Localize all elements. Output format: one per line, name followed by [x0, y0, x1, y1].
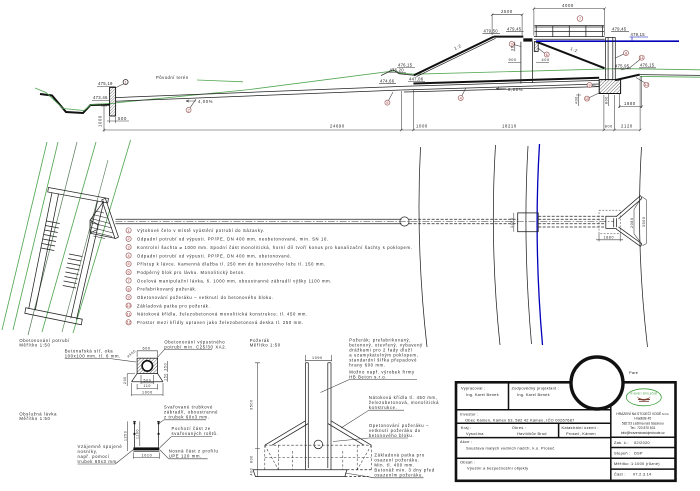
svg-text:Obsah :: Obsah : — [460, 459, 475, 464]
svg-text:1:2: 1:2 — [453, 43, 462, 51]
svg-text:6: 6 — [128, 271, 130, 275]
svg-text:Odpadní potrubí od výpusti. PP: Odpadní potrubí od výpusti. PP/PE, DN 40… — [137, 253, 292, 258]
svg-text:1000: 1000 — [142, 391, 153, 395]
svg-text:1000: 1000 — [98, 115, 103, 127]
svg-text:svařovaných roštů.: svařovaných roštů. — [172, 431, 219, 436]
svg-text:Zodpovědný projektant :: Zodpovědný projektant : — [512, 385, 560, 390]
svg-text:350: 350 — [164, 363, 168, 371]
svg-text:hrany 600 mm.: hrany 600 mm. — [349, 362, 385, 367]
svg-text:HRÁZENÍ NA STOJEČÍ VODĚ s.r.o.: HRÁZENÍ NA STOJEČÍ VODĚ s.r.o. — [616, 411, 669, 416]
svg-text:2120: 2120 — [621, 124, 633, 129]
svg-text:11: 11 — [127, 312, 131, 316]
svg-text:konstrukce.: konstrukce. — [369, 405, 398, 410]
svg-text:osazením požeráku.: osazením požeráku. — [374, 473, 423, 478]
svg-text:3: 3 — [128, 246, 130, 250]
svg-text:7: 7 — [579, 17, 581, 21]
svg-text:Část :: Část : — [614, 472, 626, 477]
svg-text:2: 2 — [128, 237, 130, 241]
svg-text:Vysočina: Vysočina — [466, 431, 484, 436]
svg-text:Výtokové čelo v místě vyústění: Výtokové čelo v místě vyústění potrubí d… — [137, 228, 265, 233]
svg-text:Paré: Paré — [629, 370, 638, 375]
svg-text:600: 600 — [143, 347, 151, 351]
svg-text:900: 900 — [509, 58, 517, 62]
svg-text:Přístup k lávce. Kamenná dlažb: Přístup k lávce. Kamenná dlažba tl. 250 … — [137, 262, 326, 267]
svg-text:7: 7 — [128, 279, 130, 283]
svg-text:18210: 18210 — [502, 124, 517, 129]
svg-text:9: 9 — [589, 83, 591, 87]
svg-text:4: 4 — [460, 96, 462, 100]
svg-text:2: 2 — [188, 108, 190, 112]
svg-text:07.2.3.14: 07.2.3.14 — [633, 472, 652, 477]
svg-text:UPE 120 mm.: UPE 120 mm. — [169, 454, 202, 459]
svg-text:betonového bloku.: betonového bloku. — [369, 433, 414, 438]
svg-text:info@hrazeninastojecivode.cz: info@hrazeninastojecivode.cz — [621, 431, 665, 435]
svg-text:Stupeň :: Stupeň : — [614, 450, 631, 455]
svg-text:479,15: 479,15 — [631, 32, 646, 37]
svg-text:400: 400 — [250, 468, 254, 476]
svg-text:8: 8 — [625, 51, 627, 55]
svg-text:5: 5 — [386, 101, 388, 105]
svg-text:24690: 24690 — [330, 124, 345, 129]
svg-text:6: 6 — [546, 53, 548, 57]
svg-text:Podpěrný blok pro lávku. Monol: Podpěrný blok pro lávku. Monolitický bet… — [137, 270, 246, 275]
svg-text:12: 12 — [126, 321, 130, 325]
svg-text:9: 9 — [128, 296, 130, 300]
svg-text:473,46: 473,46 — [93, 95, 108, 100]
svg-text:DSP: DSP — [634, 450, 643, 455]
svg-text:1000: 1000 — [416, 124, 428, 129]
svg-text:4,00%: 4,00% — [198, 99, 213, 104]
svg-text:1:2: 1:2 — [570, 46, 579, 53]
svg-text:476,20: 476,20 — [390, 67, 405, 72]
svg-text:1010: 1010 — [142, 453, 153, 457]
svg-text:11: 11 — [640, 56, 644, 60]
svg-text:2080: 2080 — [630, 217, 634, 228]
svg-text:Kontrolní šachta ⌀ 1000 mm. Sp: Kontrolní šachta ⌀ 1000 mm. Spodní část … — [137, 245, 412, 250]
svg-text:Měřítko :: Měřítko : — [614, 461, 631, 466]
svg-text:Ing. Karel Beneš: Ing. Karel Beneš — [466, 392, 499, 397]
svg-text:Původní terén: Původní terén — [156, 75, 189, 80]
svg-text:Tel.: 720 870 631: Tel.: 720 870 631 — [630, 426, 655, 430]
svg-text:447,06: 447,06 — [409, 76, 424, 81]
svg-text:10: 10 — [126, 304, 130, 308]
svg-text:1090: 1090 — [312, 356, 323, 360]
svg-text:Soustava malých vodních nádrží: Soustava malých vodních nádrží, k.ú. Pro… — [466, 446, 555, 451]
svg-text:3: 3 — [511, 42, 513, 46]
svg-text:475,95: 475,95 — [615, 64, 630, 69]
svg-text:3500: 3500 — [250, 399, 254, 410]
svg-text:Obetonování požeráku – vetknut: Obetonování požeráku – vetknutí do beton… — [137, 295, 274, 300]
svg-text:582 53 Leština nad Sázavou: 582 53 Leština nad Sázavou — [622, 421, 664, 425]
svg-text:Odpadní potrubí od výpusti. PP: Odpadní potrubí od výpusti. PP/PE, DN 40… — [137, 237, 329, 242]
svg-text:1400: 1400 — [510, 217, 514, 228]
svg-text:800: 800 — [250, 455, 254, 463]
svg-text:100x100 mm, tl. 6 mm.: 100x100 mm, tl. 6 mm. — [65, 353, 121, 358]
svg-text:Měřítko 1:50: Měřítko 1:50 — [19, 416, 50, 421]
svg-text:Měřítko 1:50: Měřítko 1:50 — [250, 343, 281, 348]
svg-text:Okres :: Okres : — [512, 425, 526, 430]
svg-text:800: 800 — [604, 96, 608, 104]
svg-text:474,66: 474,66 — [380, 79, 395, 84]
svg-text:Hradiště 45: Hradiště 45 — [634, 417, 651, 421]
svg-text:12: 12 — [644, 83, 648, 87]
svg-text:Ing. Karel Beneš: Ing. Karel Beneš — [517, 392, 550, 397]
svg-text:⌀400: ⌀400 — [126, 349, 137, 359]
svg-text:Kraj :: Kraj : — [461, 425, 472, 430]
svg-text:800: 800 — [605, 125, 613, 129]
svg-text:5: 5 — [128, 262, 130, 266]
svg-text:Měřítko 1:50: Měřítko 1:50 — [19, 343, 50, 348]
svg-text:500: 500 — [144, 379, 152, 383]
svg-text:potrubí min. C25/30 XA2.: potrubí min. C25/30 XA2. — [164, 344, 227, 349]
svg-text:479,45: 479,45 — [612, 27, 627, 32]
svg-text:8: 8 — [128, 287, 130, 291]
svg-text:Havlíčkův Brod: Havlíčkův Brod — [517, 431, 547, 436]
svg-text:Prefabrikovaný požerák.: Prefabrikovaný požerák. — [137, 287, 197, 292]
svg-text:150: 150 — [164, 373, 168, 381]
svg-text:1880: 1880 — [624, 101, 636, 106]
svg-text:RYBNÍKY SPOLEČNĚ: RYBNÍKY SPOLEČNĚ — [630, 393, 657, 396]
svg-text:z trubek 60x3 mm.: z trubek 60x3 mm. — [164, 415, 210, 420]
svg-text:1: 1 — [125, 80, 127, 84]
svg-text:02/2020: 02/2020 — [634, 440, 650, 445]
svg-text:479,45: 479,45 — [507, 27, 522, 32]
svg-text:Obec Kámen, Kámen 63, 582 42 K: Obec Kámen, Kámen 63, 582 42 Kámen, IČO … — [465, 417, 575, 422]
svg-text:2500: 2500 — [501, 9, 513, 14]
svg-text:110: 110 — [144, 384, 152, 388]
svg-text:6,00%: 6,00% — [508, 87, 523, 92]
svg-text:trubek 60x3 mm.: trubek 60x3 mm. — [78, 459, 119, 464]
svg-text:Základová patka pro požerák.: Základová patka pro požerák. — [137, 303, 210, 308]
svg-text:Akce :: Akce : — [460, 439, 472, 444]
svg-text:Investor :: Investor : — [460, 411, 479, 416]
svg-text:Proseč, Kámen: Proseč, Kámen — [566, 431, 596, 436]
svg-text:1:1000 (různé): 1:1000 (různé) — [631, 461, 660, 466]
svg-text:HB Beton s.r.o.: HB Beton s.r.o. — [349, 374, 387, 379]
svg-text:Ocelová manipulační lávka, š.: Ocelová manipulační lávka, š. 1000 mm, o… — [137, 278, 332, 283]
svg-text:1880: 1880 — [604, 235, 615, 239]
svg-text:400: 400 — [542, 58, 550, 62]
svg-text:230: 230 — [123, 376, 127, 384]
svg-text:400: 400 — [574, 96, 578, 104]
svg-text:476,15: 476,15 — [640, 63, 655, 68]
svg-text:1100: 1100 — [136, 429, 140, 439]
svg-text:4000: 4000 — [562, 3, 574, 8]
svg-text:4: 4 — [128, 254, 130, 258]
svg-text:475,19: 475,19 — [98, 81, 113, 86]
svg-text:1250: 1250 — [123, 431, 127, 441]
svg-text:1: 1 — [128, 229, 130, 233]
svg-text:Zak. č.:: Zak. č.: — [614, 440, 629, 445]
svg-text:Katastrální území :: Katastrální území : — [562, 425, 599, 430]
svg-text:Výustní a bezpečnostní objekty: Výustní a bezpečnostní objekty — [467, 465, 528, 470]
svg-text:500: 500 — [118, 116, 127, 121]
svg-text:Vypracoval :: Vypracoval : — [461, 385, 485, 390]
svg-text:Nátoková křídla, železobetonov: Nátoková křídla, železobetonová monoliti… — [137, 312, 308, 317]
svg-text:Prostor mezi křídly upraven j: Prostor mezi křídly upraven jako železob… — [137, 320, 304, 325]
svg-text:10: 10 — [585, 97, 589, 101]
svg-text:479,50: 479,50 — [484, 29, 499, 34]
svg-text:3500: 3500 — [642, 216, 646, 227]
